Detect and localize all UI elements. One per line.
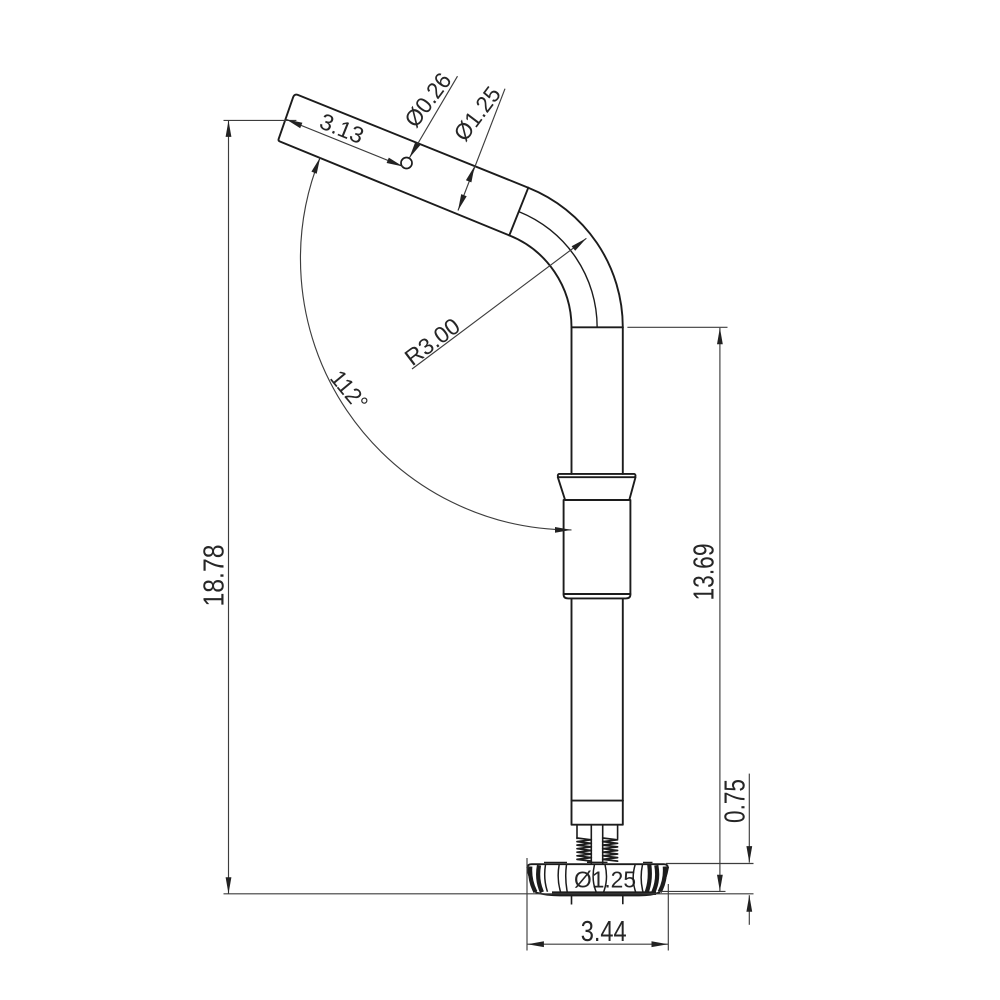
svg-text:13.69: 13.69 [689, 544, 721, 601]
svg-text:3.44: 3.44 [581, 916, 627, 948]
svg-text:18.78: 18.78 [199, 545, 231, 607]
svg-text:0.75: 0.75 [719, 779, 751, 823]
